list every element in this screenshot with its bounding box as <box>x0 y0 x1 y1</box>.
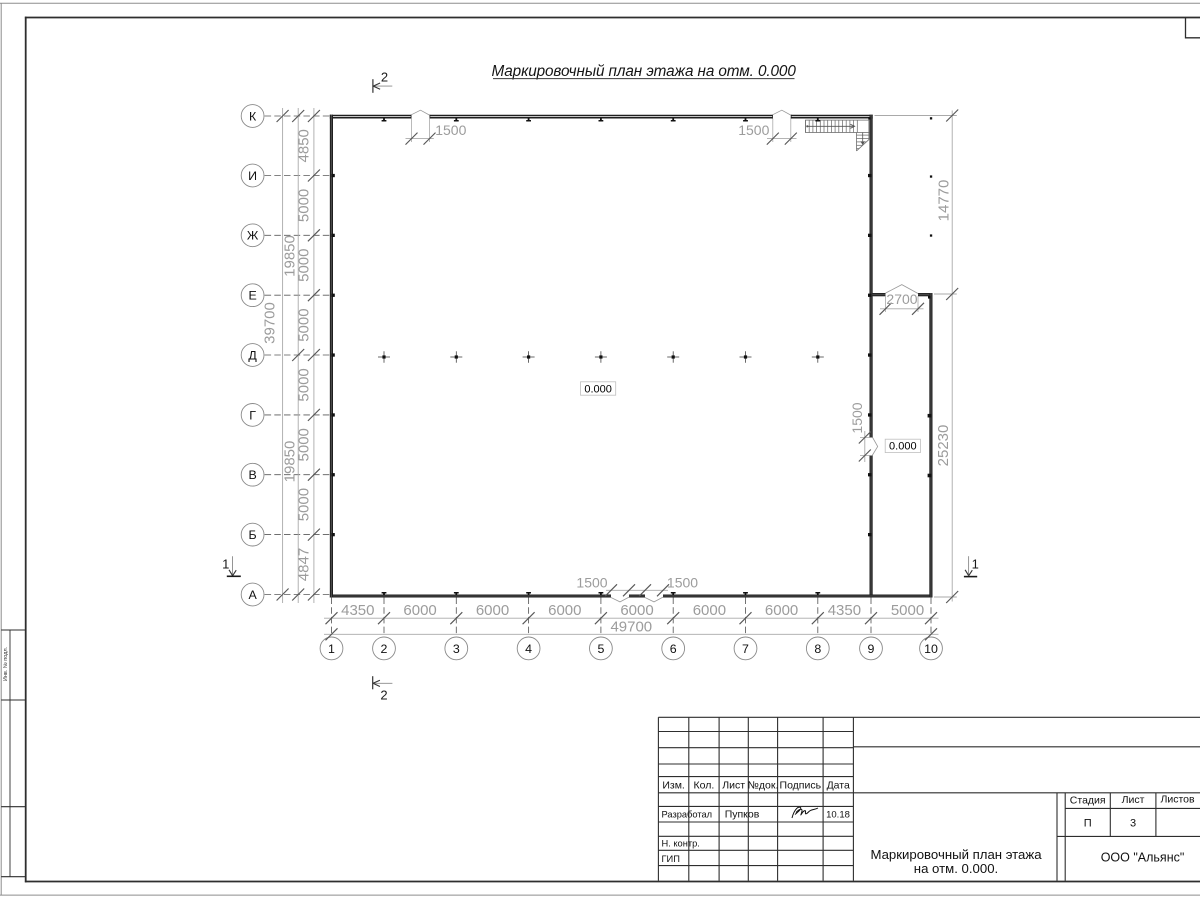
svg-text:ООО "Альянс": ООО "Альянс" <box>1101 850 1185 864</box>
svg-text:10.18: 10.18 <box>826 810 850 821</box>
svg-text:Лист: Лист <box>1122 794 1145 806</box>
svg-text:1500: 1500 <box>738 122 769 138</box>
svg-text:Б: Б <box>249 528 257 542</box>
svg-text:6000: 6000 <box>620 602 653 619</box>
svg-text:5: 5 <box>597 642 604 656</box>
svg-text:Дата: Дата <box>827 780 850 792</box>
svg-text:П: П <box>1084 818 1092 830</box>
svg-text:9: 9 <box>868 642 875 656</box>
svg-text:2700: 2700 <box>886 291 917 307</box>
svg-text:Инв. № подл.: Инв. № подл. <box>3 646 9 681</box>
svg-text:1: 1 <box>328 642 335 656</box>
svg-text:Маркировочный план этажа на от: Маркировочный план этажа на отм. 0.000 <box>491 63 796 80</box>
svg-text:Г: Г <box>249 408 256 422</box>
svg-text:5000: 5000 <box>891 602 924 619</box>
svg-text:1: 1 <box>972 556 979 571</box>
svg-text:3: 3 <box>453 642 460 656</box>
svg-text:2: 2 <box>380 688 387 703</box>
svg-text:2: 2 <box>381 642 388 656</box>
svg-text:4847: 4847 <box>295 548 312 581</box>
svg-text:Маркировочный план этажа: Маркировочный план этажа <box>870 847 1042 862</box>
svg-text:1: 1 <box>222 556 229 571</box>
svg-text:25230: 25230 <box>935 425 952 467</box>
svg-text:1500: 1500 <box>576 575 607 591</box>
svg-text:И: И <box>248 169 257 183</box>
svg-text:19850: 19850 <box>281 441 298 483</box>
svg-text:10: 10 <box>924 642 938 656</box>
svg-text:Стадия: Стадия <box>1070 794 1106 806</box>
svg-text:3: 3 <box>1130 818 1136 830</box>
svg-text:4850: 4850 <box>295 129 312 162</box>
svg-text:А: А <box>248 588 257 602</box>
svg-text:Подпись: Подпись <box>780 780 822 792</box>
svg-text:Н. контр.: Н. контр. <box>662 839 700 849</box>
svg-text:5000: 5000 <box>295 189 312 222</box>
svg-text:6000: 6000 <box>693 602 726 619</box>
svg-text:Разработал: Разработал <box>662 810 713 820</box>
svg-text:8: 8 <box>814 642 821 656</box>
svg-text:6: 6 <box>670 642 677 656</box>
svg-text:2: 2 <box>381 69 388 84</box>
svg-text:Кол.: Кол. <box>694 780 715 792</box>
svg-text:4350: 4350 <box>341 602 374 619</box>
svg-text:1500: 1500 <box>849 402 865 433</box>
svg-text:Е: Е <box>248 289 256 303</box>
svg-text:6000: 6000 <box>403 602 436 619</box>
svg-text:5000: 5000 <box>295 308 312 341</box>
svg-text:4350: 4350 <box>828 602 861 619</box>
svg-text:19850: 19850 <box>281 235 298 277</box>
svg-text:49700: 49700 <box>610 618 652 635</box>
svg-text:Ж: Ж <box>247 229 259 243</box>
svg-text:6000: 6000 <box>548 602 581 619</box>
svg-text:4: 4 <box>525 642 532 656</box>
svg-text:39700: 39700 <box>261 302 278 344</box>
svg-text:0.000: 0.000 <box>889 441 917 453</box>
svg-text:6000: 6000 <box>765 602 798 619</box>
svg-text:7: 7 <box>742 642 749 656</box>
svg-text:К: К <box>249 109 257 123</box>
svg-text:1500: 1500 <box>435 122 466 138</box>
svg-text:5000: 5000 <box>295 368 312 401</box>
svg-text:ГИП: ГИП <box>662 854 680 864</box>
svg-text:Д: Д <box>248 348 257 362</box>
svg-text:Лист: Лист <box>722 780 745 792</box>
svg-text:1500: 1500 <box>667 575 698 591</box>
svg-text:Листов: Листов <box>1160 794 1195 806</box>
svg-text:0.000: 0.000 <box>584 383 612 395</box>
svg-text:Изм.: Изм. <box>662 780 685 792</box>
svg-text:№док.: №док. <box>748 780 779 792</box>
svg-text:Пупков: Пупков <box>725 809 760 821</box>
svg-text:на отм. 0.000.: на отм. 0.000. <box>914 861 998 876</box>
svg-text:В: В <box>248 468 256 482</box>
svg-text:6000: 6000 <box>476 602 509 619</box>
svg-text:5000: 5000 <box>295 488 312 521</box>
svg-text:14770: 14770 <box>935 180 952 222</box>
